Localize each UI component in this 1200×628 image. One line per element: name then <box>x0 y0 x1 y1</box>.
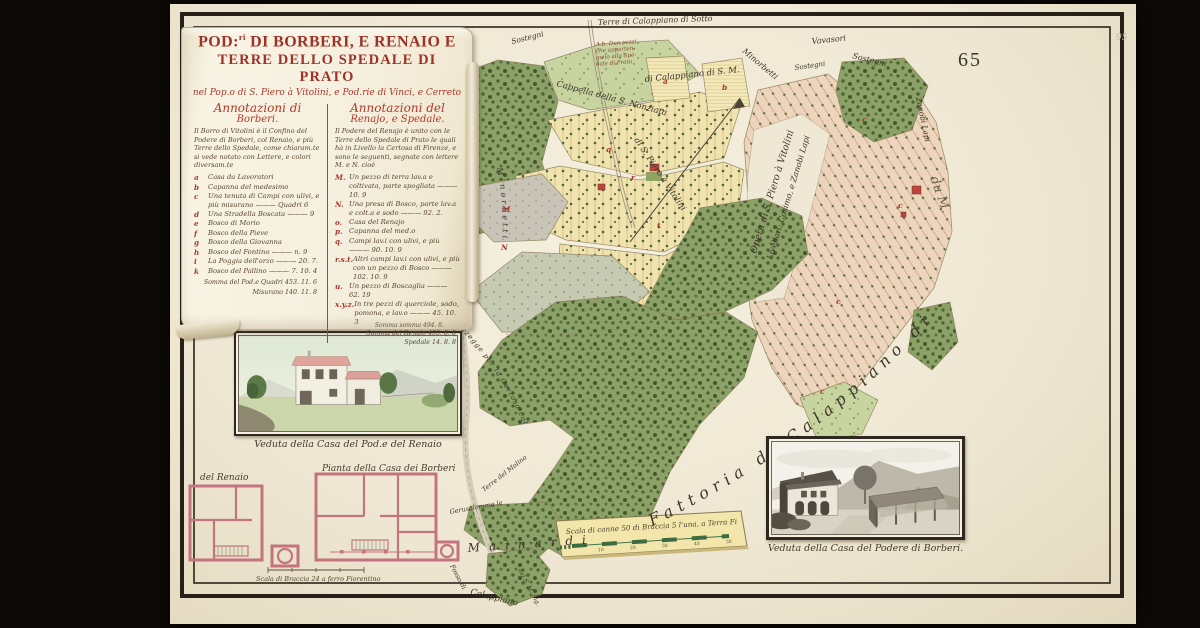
annotation-item-key: e <box>194 219 208 229</box>
annotation-item-key: a <box>194 173 208 183</box>
column-heading: Annotazioni di <box>194 102 321 115</box>
map-label: Sostegni <box>794 60 826 72</box>
annotation-columns: Annotazioni di Borberi. Il Borro di Vito… <box>192 102 462 347</box>
parcel-letter: t <box>657 221 661 230</box>
sheet-number: 65 <box>958 49 982 71</box>
map-title-line1: POD:ri DI BORBERI, E RENAIO E <box>192 33 462 51</box>
totals-line: Spedale 14. 8. 8 <box>335 338 456 347</box>
annotation-item-key: f <box>194 229 208 239</box>
annotation-item-key: u. <box>335 282 349 300</box>
column-intro: Il Podere del Renajo è unito con le Terr… <box>335 127 460 170</box>
map-label: Sostegni <box>510 29 545 46</box>
map-label: Fosso di <box>448 562 468 590</box>
annotation-item: hBosco del Fontino ——— n. 9 <box>194 248 321 258</box>
annotation-item-key: h <box>194 248 208 258</box>
map-label: Minorbetti <box>740 46 780 82</box>
annotation-item-text: Una Stradella Boscata ——— 9 <box>208 210 321 220</box>
parcel-letter: c <box>862 115 867 124</box>
annotation-item-text: Bosco del Pallino ——— 7. 10. 4 <box>208 267 321 277</box>
annotation-item: aCasa da Lavoratori <box>194 173 321 183</box>
parcel-letter: c <box>836 297 841 306</box>
annotation-item-key: p. <box>335 227 349 237</box>
annotations-borberi: Annotazioni di Borberi. Il Borro di Vito… <box>192 102 327 347</box>
parcel-letter: M <box>501 205 511 214</box>
annotation-item-key: d <box>194 210 208 220</box>
annotation-item-text: Un pezzo di Boscaglia ——— 62. 19 <box>349 282 460 300</box>
annotation-item-key: q. <box>335 237 349 255</box>
house-marker <box>598 184 605 190</box>
map-sheet: del Renaio Pianta della Casa dei Borberi… <box>170 4 1136 624</box>
annotation-item-text: Campi lav.i con ulivi, e più ——— 90. 10.… <box>349 237 460 255</box>
annotation-item-key: x.y.z. <box>335 300 354 327</box>
scale-tick: 30 <box>662 543 668 549</box>
annotation-item-key: i <box>194 257 208 267</box>
house-marker <box>901 212 906 217</box>
annotation-item-key: b <box>194 183 208 193</box>
annotation-item-text: Casa del Renajo <box>349 218 460 228</box>
annotation-item: bCapanna del medesimo <box>194 183 321 193</box>
borberi-view-scene <box>772 442 959 534</box>
parcel-letter: a <box>663 77 668 86</box>
annotation-item: q.Campi lav.i con ulivi, e più ——— 90. 1… <box>335 237 460 255</box>
map-subtitle: nel Pop.o di S. Piero à Vitolini, e Pod.… <box>192 88 462 98</box>
plan-borberi-label: Pianta della Casa dei Borberi <box>321 464 456 474</box>
annotation-item: u.Un pezzo di Boscaglia ——— 62. 19 <box>335 282 460 300</box>
corner-note: 95 <box>1116 33 1128 43</box>
annotation-item-text: Bosco della Giovanna <box>208 238 321 248</box>
borberi-view-frame <box>766 436 965 540</box>
annotation-item: N.Una presa di Bosco, parte lav.a e colt… <box>335 200 460 218</box>
plan-scale-caption: Scala di Braccia 24 a ferro Fiorentino <box>256 575 381 583</box>
annotation-item: cUna tenuta di Campi con ulivi, e più mi… <box>194 192 321 210</box>
annotation-item-text: La Poggia dell'orzo ——— 20. 7. <box>208 257 321 267</box>
parcel-letter: c <box>898 201 903 210</box>
renaio-view-picture <box>238 335 458 432</box>
annotation-item-text: Casa da Lavoratori <box>208 173 321 183</box>
totals-line: Somma del Renaio 453. 8. 8 <box>335 329 456 338</box>
spedale-note-block: A.b. Due pezziche apparten-gono allo Spe… <box>595 39 637 68</box>
annotations-renajo: Annotazioni del Renajo, e Spedale. Il Po… <box>327 102 462 347</box>
annotation-item: dUna Stradella Boscata ——— 9 <box>194 210 321 220</box>
map-label: Terre del Molino <box>480 453 528 493</box>
annotation-item-text: Bosco della Pieve <box>208 229 321 239</box>
annotation-item-key: r.s.t. <box>335 255 353 282</box>
totals-line: Somma del Pod.e Quadri 453. 11. 6 <box>194 278 317 287</box>
plan-scale-ruler <box>268 567 364 573</box>
annotation-item-key: M. <box>335 173 349 200</box>
column-heading: Annotazioni del <box>335 102 460 115</box>
title-superscript: ri <box>239 32 246 42</box>
annotation-item-text: Bosco di Morio <box>208 219 321 229</box>
annotation-item: p.Capanna del med.o <box>335 227 460 237</box>
annotation-list: M.Un pezzo di terra lav.a e coltivata, p… <box>335 173 460 327</box>
annotation-item: M.Un pezzo di terra lav.a e coltivata, p… <box>335 173 460 200</box>
plan-renaio-label: del Renaio <box>200 473 249 483</box>
annotation-item: r.s.t.Altri campi lav.i con ulivi, e più… <box>335 255 460 282</box>
parcel-letter: c <box>820 387 825 396</box>
annotation-item-text: Una tenuta di Campi con ulivi, e più mis… <box>208 192 321 210</box>
annotation-item: o.Casa del Renajo <box>335 218 460 228</box>
column-totals: Somma del Pod.e Quadri 453. 11. 6Misuran… <box>194 278 321 296</box>
annotation-item-key: N. <box>335 200 349 218</box>
map-title-line2: TERRE DELLO SPEDALE DI PRATO <box>192 52 462 86</box>
borberi-view-caption: Veduta della Casa del Podere di Borberi. <box>766 543 965 554</box>
annotation-item: kBosco del Pallino ——— 7. 10. 4 <box>194 267 321 277</box>
annotation-item: gBosco della Giovanna <box>194 238 321 248</box>
plan-renaio <box>190 486 298 566</box>
annotation-item-text: Un pezzo di terra lav.a e coltivata, par… <box>349 173 460 200</box>
column-intro: Il Borro di Vitolini è il Confino del Po… <box>194 127 321 170</box>
annotation-item: eBosco di Morio <box>194 219 321 229</box>
totals-line: Misurano 140. 11. 8 <box>194 288 317 297</box>
annotation-item: iLa Poggia dell'orzo ——— 20. 7. <box>194 257 321 267</box>
annotation-item-key: g <box>194 238 208 248</box>
annotation-item: fBosco della Pieve <box>194 229 321 239</box>
floor-plans <box>190 474 458 573</box>
annotation-item-text: Capanna del medesimo <box>208 183 321 193</box>
annotation-item-text: Bosco del Fontino ——— n. 9 <box>208 248 321 258</box>
borberi-view-picture <box>771 441 960 535</box>
plan-borberi <box>316 474 458 560</box>
scale-tick: 50 <box>726 539 732 545</box>
scale-tick: 20 <box>630 545 636 551</box>
annotation-item-key: k <box>194 267 208 277</box>
cartouche-footnote: Somma somma 494. 8. <box>375 322 444 329</box>
annotation-item-text: Una presa di Bosco, parte lav.a e colt.a… <box>349 200 460 218</box>
scale-tick: 40 <box>694 541 700 547</box>
map-label: Vavasori <box>811 33 847 46</box>
scale-tick: 10 <box>598 547 604 553</box>
renaio-view-scene <box>239 336 457 431</box>
parcel-letter: q <box>606 145 611 154</box>
column-totals: Somma del Renaio 453. 8. 8Spedale 14. 8.… <box>335 329 460 347</box>
cartouche-curl-right <box>466 62 479 302</box>
annotation-item-key: o. <box>335 218 349 228</box>
annotation-list: aCasa da LavoratoribCapanna del medesimo… <box>194 173 321 276</box>
house-marker <box>912 186 921 194</box>
annotation-item-key: c <box>194 192 208 210</box>
column-heading: Borberi. <box>194 115 321 126</box>
annotation-item-text: Capanna del med.o <box>349 227 460 237</box>
title-cartouche: POD:ri DI BORBERI, E RENAIO E TERRE DELL… <box>181 27 473 330</box>
renaio-view-caption: Veduta della Casa del Pod.e del Renaio <box>234 439 462 450</box>
parcel-letter: b <box>722 83 727 92</box>
annotation-item-text: Altri campi lav.i con ulivi, e più con u… <box>353 255 460 282</box>
parcel-letter: N <box>500 243 509 252</box>
column-heading: Renajo, e Spedale. <box>335 115 460 126</box>
